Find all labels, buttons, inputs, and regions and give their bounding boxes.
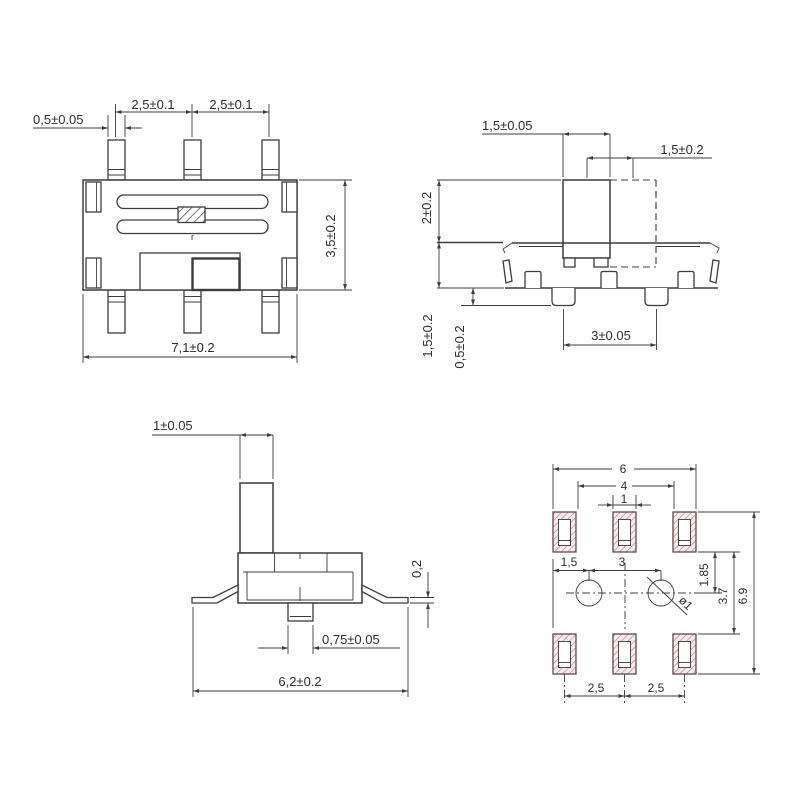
dim-body-depth-label: 3,5±0.2 (323, 214, 338, 257)
dim-lead-thickness: 0,2 (409, 560, 434, 628)
dim-lead-thickness-label: 0,2 (409, 560, 424, 578)
dim-post-width: 0,75±0.05 (258, 625, 400, 654)
dim-pitch-right-label: 2,5±0.1 (209, 97, 252, 112)
dim-knob-width-label: 1,5±0.05 (482, 118, 533, 133)
dim-pad-inner-span-label: 4 (621, 479, 628, 493)
dim-pad-outer-span-label: 6 (620, 462, 627, 476)
dim-pad-to-hole: 1.85 (697, 552, 722, 593)
dim-hole-diameter-label: ø1 (676, 593, 696, 613)
top-view-pins-lower (108, 290, 279, 333)
dim-knob-thickness: 1±0.05 (152, 418, 273, 479)
top-view: r 2,5±0.1 2,5±0.1 0,5±0.05 3,5±0.2 (33, 97, 352, 363)
dim-pad-width: 1 (598, 492, 651, 509)
dim-pad-to-hole-label: 1.85 (697, 563, 711, 587)
dim-post-width-label: 0,75±0.05 (322, 632, 380, 647)
dim-pin-width: 0,5±0.05 (33, 112, 142, 137)
post-side-right (645, 288, 668, 306)
dim-knob-height: 2±0.2 (419, 180, 561, 243)
dim-knob-travel: 1,5±0.2 (587, 142, 712, 178)
gullwing-lead-right (362, 585, 408, 603)
slide-switch-drawing: r 2,5±0.1 2,5±0.1 0,5±0.05 3,5±0.2 (0, 0, 800, 800)
dim-pitch-left-label: 2,5±0.1 (131, 97, 174, 112)
dim-post-height: 0,5±0.2 (452, 288, 551, 369)
dim-post-pitch: 3±0.05 (564, 309, 657, 350)
gullwing-lead-left (192, 585, 238, 603)
end-view-post (288, 603, 313, 621)
dim-body-height-label: 1,5±0.2 (420, 314, 435, 357)
dim-pad-width-label: 1 (621, 492, 628, 506)
dim-hole-offset: 1,5 (553, 555, 589, 628)
side-view-body (503, 243, 719, 306)
top-view-pins-upper (108, 140, 279, 180)
terminal-side-1 (525, 272, 541, 289)
knob-alternate-position (610, 180, 656, 267)
top-view-recess-inner (193, 259, 240, 291)
dim-post-height-label: 0,5±0.2 (452, 325, 467, 368)
knob-foot-right (594, 258, 608, 267)
end-view-knob (240, 483, 273, 553)
dim-pin-width-label: 0,5±0.05 (33, 112, 84, 127)
dim-pad-pitch-right-label: 2,5 (648, 681, 665, 695)
dim-hole-diameter: ø1 (647, 577, 696, 615)
dim-knob-thickness-label: 1±0.05 (153, 418, 193, 433)
end-view: 1±0.05 0,2 0,75±0.05 6,2±0.2 (152, 418, 434, 697)
dim-hole-pitch-label: 3 (619, 555, 626, 569)
dim-pin-pitch: 2,5±0.1 2,5±0.1 (116, 97, 270, 137)
dim-knob-width: 1,5±0.05 (482, 118, 610, 177)
dim-post-pitch-label: 3±0.05 (591, 328, 631, 343)
dim-row-gap-label: 3.7 (716, 587, 730, 604)
side-view: 1,5±0.05 1,5±0.2 2±0.2 1,5±0.2 0,5±0.2 (419, 118, 719, 369)
post-side-left (552, 288, 575, 306)
dim-overall-height-label: 6.9 (736, 587, 750, 604)
dim-body-depth: 3,5±0.2 (299, 180, 352, 290)
dim-overall-width-label: 6,2±0.2 (278, 674, 321, 689)
pcb-pads-bottom-row (553, 634, 696, 674)
dim-body-width-label: 7,1±0.2 (171, 340, 214, 355)
terminal-side-3 (678, 272, 694, 289)
dim-knob-height-label: 2±0.2 (419, 192, 434, 224)
technical-drawing-page: r 2,5±0.1 2,5±0.1 0,5±0.05 3,5±0.2 (0, 0, 800, 800)
pcb-land-pattern: 6 4 1 1,5 3 (553, 462, 760, 706)
actuator-hatched (178, 207, 205, 223)
dim-pad-pitch-left-label: 2,5 (588, 681, 605, 695)
orientation-mark: r (191, 232, 194, 242)
dim-knob-travel-label: 1,5±0.2 (660, 142, 703, 157)
pcb-pads-top-row (553, 512, 696, 552)
terminal-side-2 (601, 272, 617, 289)
dim-hole-pitch: 3 (589, 555, 661, 581)
knob-foot-left (564, 258, 575, 267)
side-view-knob (563, 180, 610, 258)
dim-hole-offset-label: 1,5 (561, 555, 578, 569)
